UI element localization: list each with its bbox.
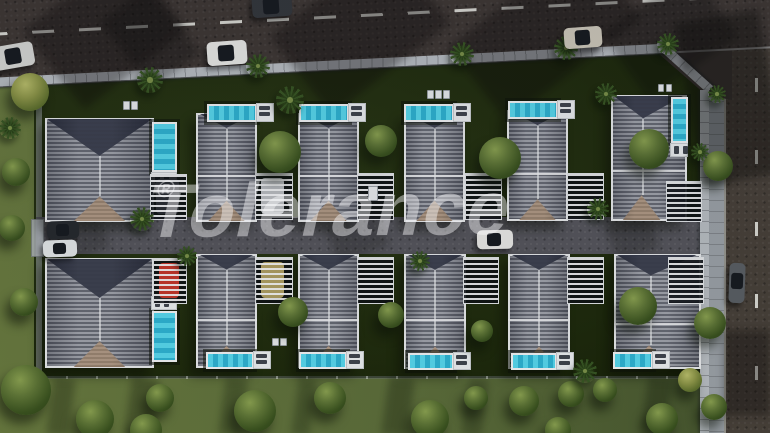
aerial-site-render: Tolerance® bbox=[0, 0, 770, 433]
watermark-text: Tolerance bbox=[140, 171, 520, 250]
